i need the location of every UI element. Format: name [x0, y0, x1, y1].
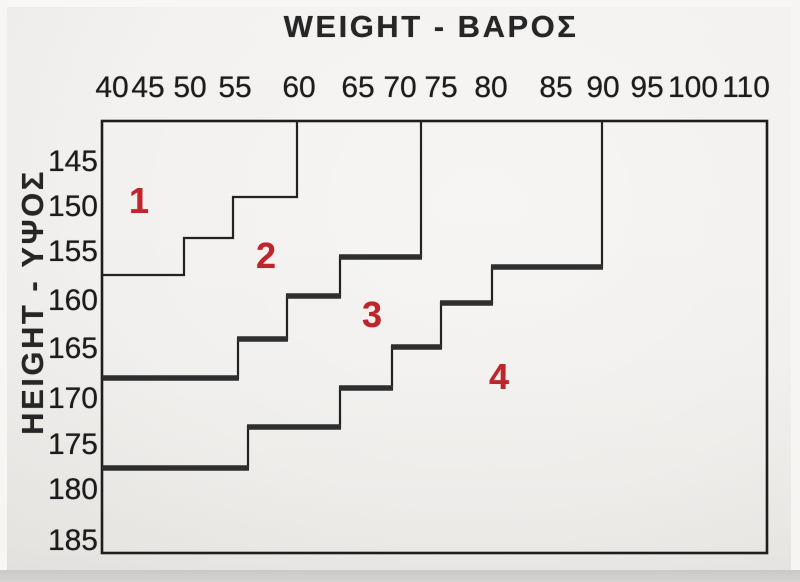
y-tick-label-175: 175 [28, 428, 98, 462]
y-tick-label-165: 165 [28, 332, 98, 366]
y-tick-label-145: 145 [28, 145, 98, 179]
y-tick-label-150: 150 [28, 190, 98, 224]
x-tick-label-75: 75 [424, 71, 457, 105]
y-tick-label-160: 160 [28, 284, 98, 318]
x-tick-label-55: 55 [218, 71, 251, 105]
zone-label-2: 2 [256, 235, 276, 277]
y-tick-label-155: 155 [28, 235, 98, 269]
x-tick-label-70: 70 [383, 71, 416, 105]
x-tick-label-95: 95 [630, 71, 663, 105]
zone-label-4: 4 [489, 356, 509, 398]
x-tick-label-80: 80 [474, 71, 507, 105]
x-axis-title: WEIGHT - ΒΑΡΟΣ [284, 9, 579, 45]
x-tick-label-40: 40 [95, 71, 128, 105]
size-chart-photo: WEIGHT - ΒΑΡΟΣ HEIGHT - ΥΨΟΣ 40455055606… [0, 0, 800, 582]
x-tick-label-100: 100 [668, 71, 718, 105]
y-tick-label-185: 185 [28, 524, 98, 558]
x-tick-label-60: 60 [282, 71, 315, 105]
zone-label-1: 1 [129, 180, 149, 222]
x-tick-label-90: 90 [586, 71, 619, 105]
x-tick-label-45: 45 [131, 71, 164, 105]
y-tick-label-170: 170 [28, 382, 98, 416]
x-tick-label-85: 85 [539, 71, 572, 105]
zone-label-3: 3 [362, 294, 382, 336]
x-tick-label-110: 110 [722, 71, 770, 105]
x-tick-label-50: 50 [173, 71, 206, 105]
x-tick-label-65: 65 [341, 71, 374, 105]
boundary-size-3-4 [103, 121, 602, 468]
y-tick-label-180: 180 [28, 473, 98, 507]
chart-frame [102, 121, 767, 553]
